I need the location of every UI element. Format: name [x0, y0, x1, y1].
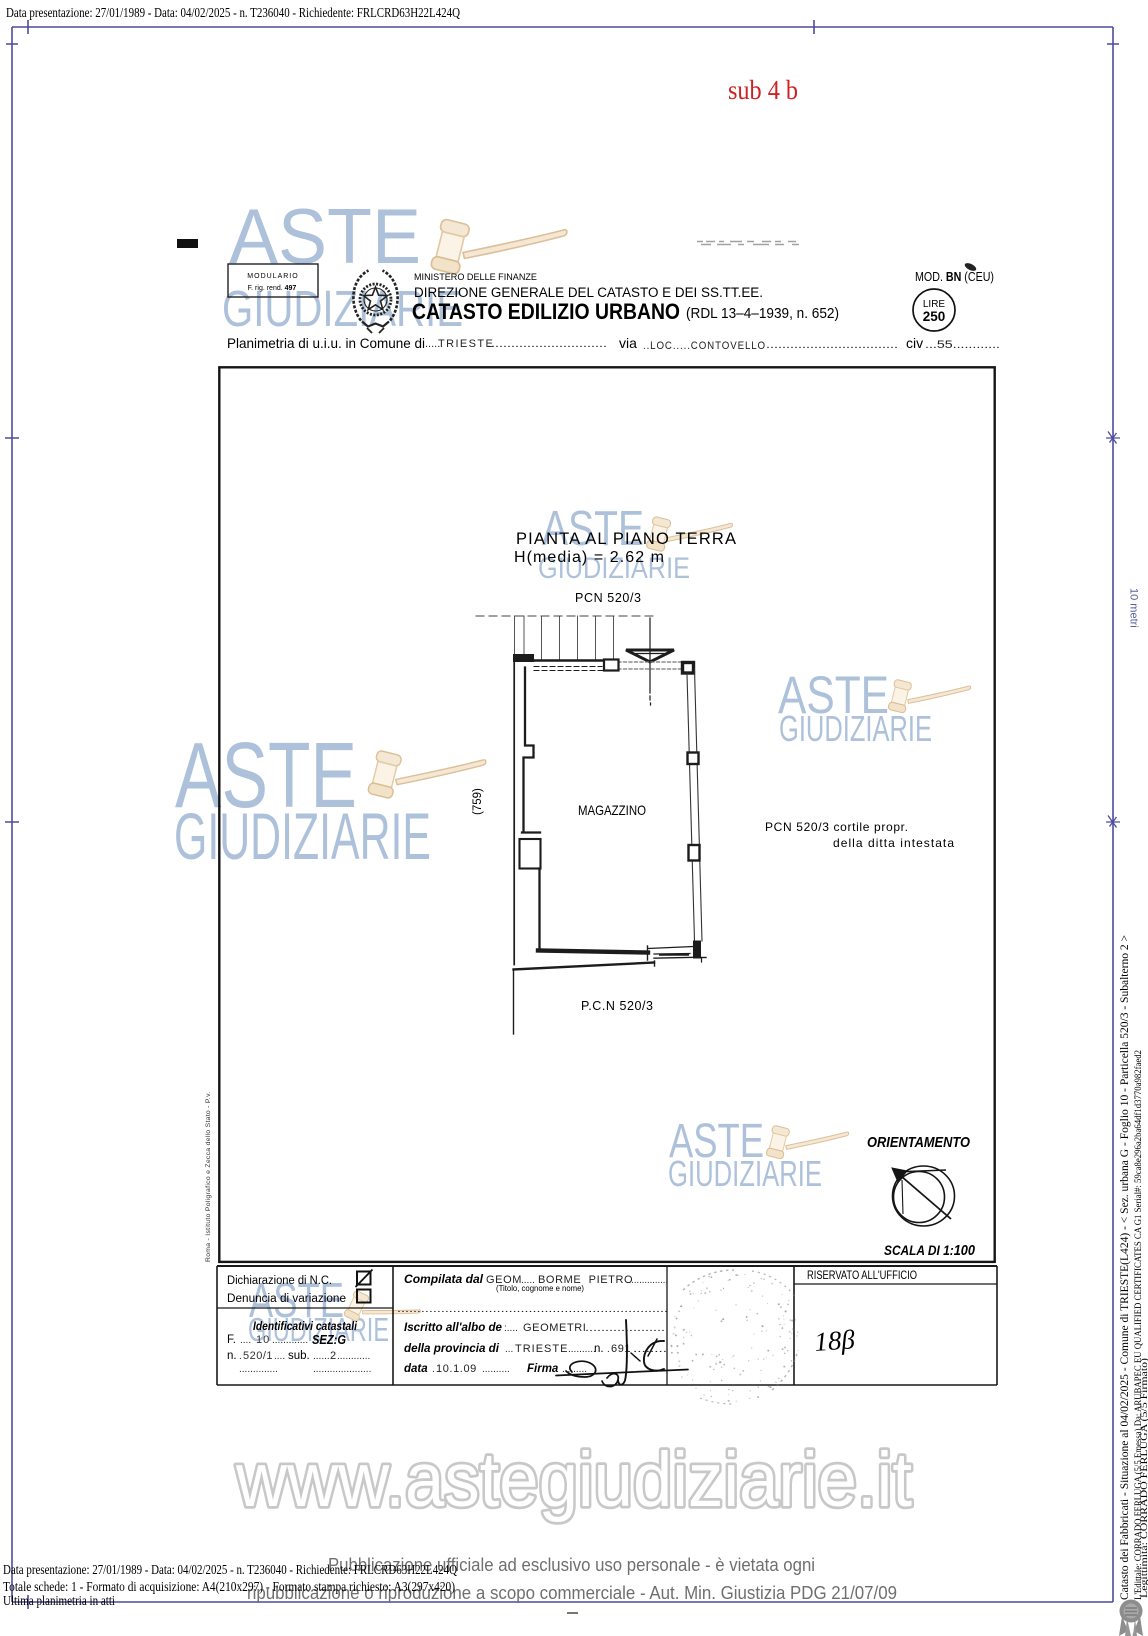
svg-text:....: .... [274, 1351, 285, 1362]
svg-text:250: 250 [923, 309, 946, 324]
svg-text:.: . [239, 1351, 242, 1362]
svg-text:Compilata dal: Compilata dal [404, 1274, 484, 1286]
svg-text:10.1.09: 10.1.09 [436, 1363, 477, 1375]
svg-text:....: .... [240, 1335, 251, 1346]
svg-text:Catasto dei Fabbricati - Situa: Catasto dei Fabbricati - Situazione al 0… [1117, 935, 1131, 1600]
svg-text:Data presentazione: 27/01/1989: Data presentazione: 27/01/1989 - Data: 0… [3, 1562, 457, 1577]
svg-text:GIUDIZIARIE: GIUDIZIARIE [668, 1153, 822, 1194]
svg-text:civ: civ [906, 335, 923, 351]
svg-text:Roma - Istituto Poligrafico e: Roma - Istituto Poligrafico e Zecca dell… [205, 1092, 212, 1262]
svg-text:sub 4 b: sub 4 b [728, 75, 798, 105]
svg-text:......: ...... [313, 1351, 330, 1362]
svg-text:10 metri: 10 metri [1128, 588, 1140, 628]
svg-text:10: 10 [256, 1334, 270, 1346]
svg-text::....: :.... [504, 1323, 518, 1334]
svg-text:della provincia di: della provincia di [404, 1343, 500, 1355]
svg-text:520/1: 520/1 [243, 1350, 273, 1362]
svg-text:GIUDIZIARIE: GIUDIZIARIE [174, 799, 431, 873]
svg-text:DIREZIONE GENERALE DEL CATASTO: DIREZIONE GENERALE DEL CATASTO E DEI SS.… [414, 285, 763, 300]
svg-text:............: ............ [337, 1351, 370, 1362]
svg-text:2: 2 [330, 1350, 336, 1362]
svg-text:..............................: ........................................… [397, 1304, 668, 1315]
svg-text:F. rig. rend. 497: F. rig. rend. 497 [248, 285, 297, 292]
svg-text:..............................: .............................. [487, 338, 607, 350]
svg-text:MODULARIO: MODULARIO [247, 273, 298, 280]
svg-text:(759): (759) [472, 788, 484, 815]
svg-text:..............: .............. [239, 1364, 278, 1375]
svg-text:RISERVATO ALL'UFFICIO: RISERVATO ALL'UFFICIO [807, 1270, 917, 1282]
svg-text:18β: 18β [813, 1324, 856, 1357]
svg-text:691: 691 [611, 1343, 631, 1355]
svg-text:della ditta intestata: della ditta intestata [833, 836, 954, 850]
svg-text:PIANTA AL PIANO TERRA: PIANTA AL PIANO TERRA [516, 530, 736, 548]
svg-text:.....................: ..................... [313, 1364, 371, 1375]
svg-text:GEOMETRI: GEOMETRI [523, 1322, 586, 1334]
svg-text:MINISTERO DELLE FINANZE: MINISTERO DELLE FINANZE [414, 272, 537, 283]
svg-text:Legittimità: CORRADO FERLUGA (: Legittimità: CORRADO FERLUGA (5/5 Firmat… [1139, 1358, 1148, 1598]
svg-text:(RDL 13–4–1939, n. 652): (RDL 13–4–1939, n. 652) [686, 305, 839, 322]
svg-text:..........: .......... [482, 1364, 510, 1375]
svg-text:....................: .................... [585, 1323, 665, 1334]
svg-text:.........: ......... [562, 1364, 587, 1375]
svg-text:..............................: ................................. [766, 339, 898, 351]
svg-text:(Titolo, cognome e nome): (Titolo, cognome e nome) [496, 1284, 584, 1293]
svg-text:H(media) = 2.62 m: H(media) = 2.62 m [514, 549, 664, 566]
svg-text:CATASTO EDILIZIO URBANO: CATASTO EDILIZIO URBANO [412, 299, 680, 324]
svg-text:.............: ............. [272, 1335, 308, 1346]
svg-text:SCALA DI 1:100: SCALA DI 1:100 [884, 1242, 976, 1259]
svg-text:Planimetria di u.i.u. in Comun: Planimetria di u.i.u. in Comune di [227, 335, 425, 351]
svg-text:n.: n. [594, 1343, 604, 1355]
svg-text:.: . [432, 1364, 435, 1375]
svg-text:...55............: ...55............ [925, 339, 1000, 351]
svg-text:ORIENTAMENTO: ORIENTAMENTO [867, 1134, 970, 1151]
svg-text:SEZ:G: SEZ:G [312, 1333, 346, 1347]
svg-text:Firma: Firma [527, 1363, 559, 1375]
svg-text:TRIESTE: TRIESTE [438, 338, 494, 350]
svg-text:................: ................ [626, 1275, 668, 1286]
svg-text:sub.: sub. [288, 1350, 310, 1362]
svg-text:.: . [607, 1344, 610, 1355]
svg-text:MOD. BN (CEU): MOD. BN (CEU) [915, 270, 994, 284]
svg-text:PCN 520/3 cortile propr.: PCN 520/3 cortile propr. [765, 820, 908, 834]
svg-text:Denuncia di variazione: Denuncia di variazione [227, 1293, 346, 1305]
svg-text:Iscritto all'albo de: Iscritto all'albo de [404, 1322, 503, 1334]
svg-text:ASTE: ASTE [229, 192, 421, 280]
svg-text:TRIESTE: TRIESTE [515, 1343, 568, 1355]
svg-text:Dichiarazione di N.C.: Dichiarazione di N.C. [227, 1275, 332, 1287]
svg-text:P.C.N 520/3: P.C.N 520/3 [581, 999, 653, 1013]
svg-text:www.astegiudiziarie.it: www.astegiudiziarie.it [235, 1437, 912, 1523]
svg-text:Data presentazione: 27/01/1989: Data presentazione: 27/01/1989 - Data: 0… [6, 5, 460, 20]
svg-text:GIUDIZIARIE: GIUDIZIARIE [779, 708, 932, 749]
svg-text:MAGAZZINO: MAGAZZINO [578, 802, 646, 818]
svg-text:Totale schede: 1 - Formato di: Totale schede: 1 - Formato di acquisizio… [3, 1579, 455, 1594]
svg-text:..........: .......... [568, 1344, 596, 1355]
svg-text:Identificativi catastali: Identificativi catastali [253, 1321, 358, 1333]
svg-text:PCN 520/3: PCN 520/3 [575, 591, 641, 605]
svg-text:n.: n. [227, 1350, 237, 1362]
svg-text:..LOC.....CONTOVELLO: ..LOC.....CONTOVELLO [643, 340, 766, 352]
svg-text:Ultima planimetria in atti: Ultima planimetria in atti [3, 1593, 115, 1608]
svg-text:...: ... [505, 1344, 513, 1355]
svg-text:via: via [619, 335, 637, 351]
svg-text:F.: F. [227, 1334, 236, 1346]
svg-text:data: data [404, 1363, 428, 1375]
